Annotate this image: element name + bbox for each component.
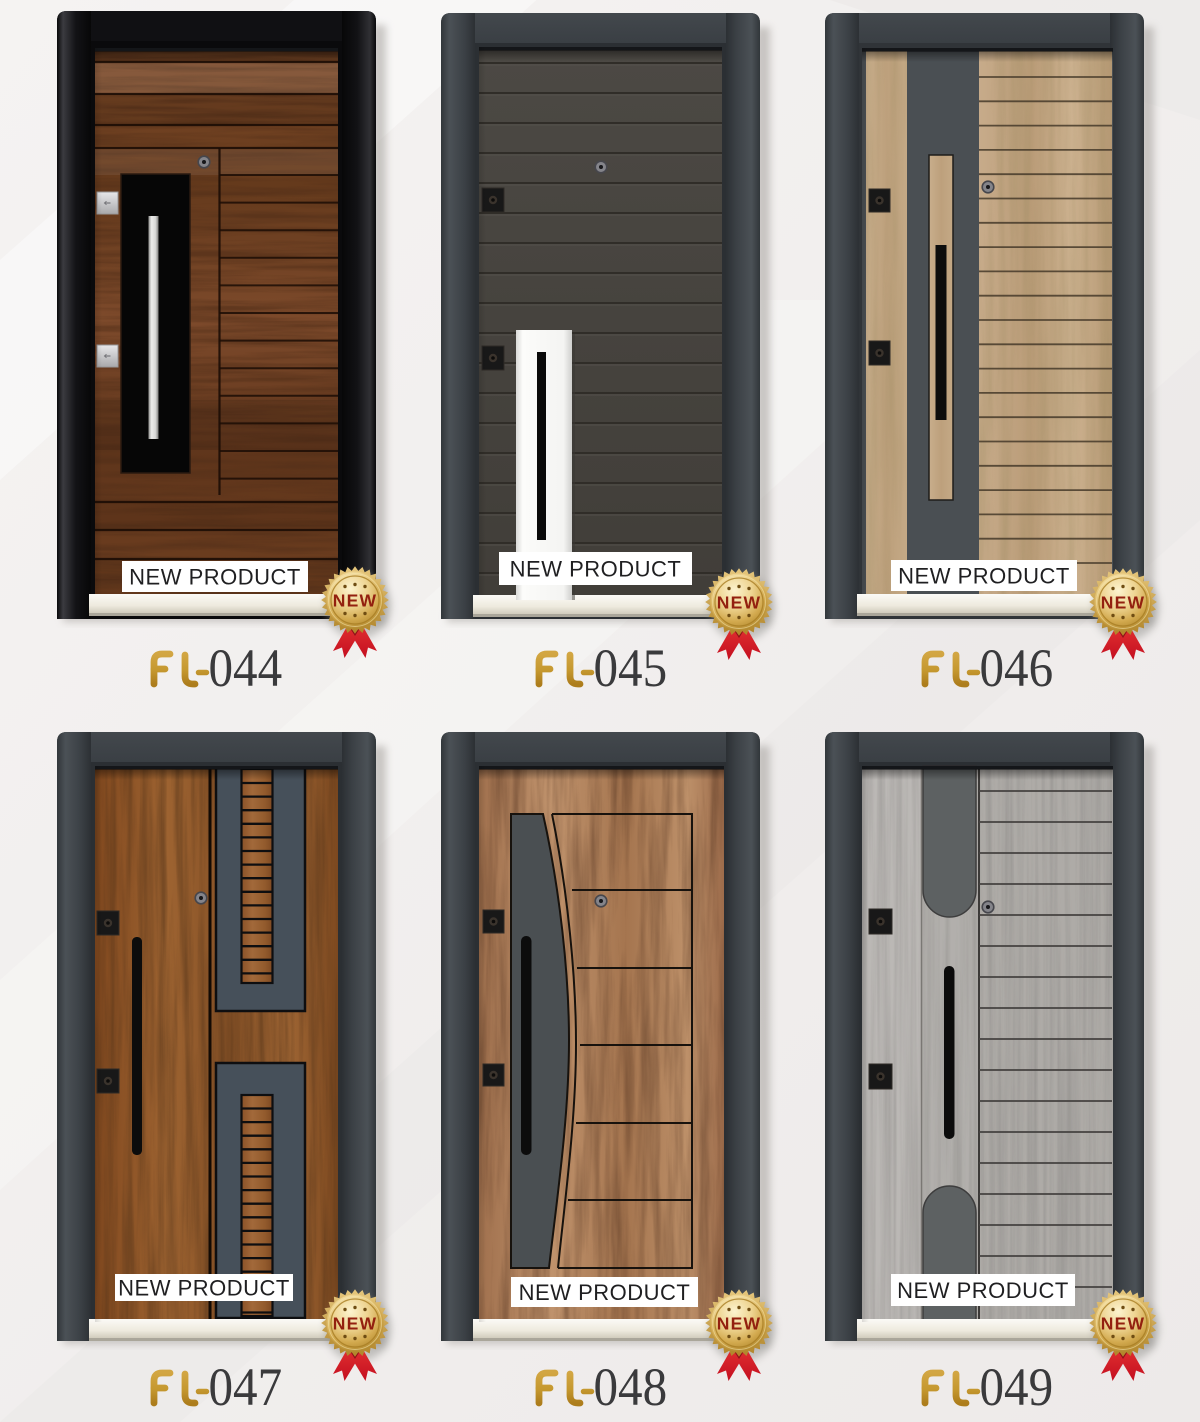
svg-text:049: 049 — [980, 1358, 1054, 1418]
svg-text:NEW PRODUCT: NEW PRODUCT — [118, 1275, 290, 1300]
svg-text:045: 045 — [594, 639, 668, 699]
svg-text:044: 044 — [209, 639, 283, 699]
svg-text:047: 047 — [209, 1358, 283, 1418]
svg-text:046: 046 — [980, 639, 1054, 699]
svg-text:NEW PRODUCT: NEW PRODUCT — [519, 1280, 691, 1305]
svg-text:048: 048 — [594, 1358, 668, 1418]
svg-text:NEW PRODUCT: NEW PRODUCT — [897, 1278, 1069, 1303]
svg-text:NEW PRODUCT: NEW PRODUCT — [510, 556, 682, 581]
svg-text:NEW PRODUCT: NEW PRODUCT — [129, 564, 301, 589]
svg-text:NEW PRODUCT: NEW PRODUCT — [898, 563, 1070, 588]
